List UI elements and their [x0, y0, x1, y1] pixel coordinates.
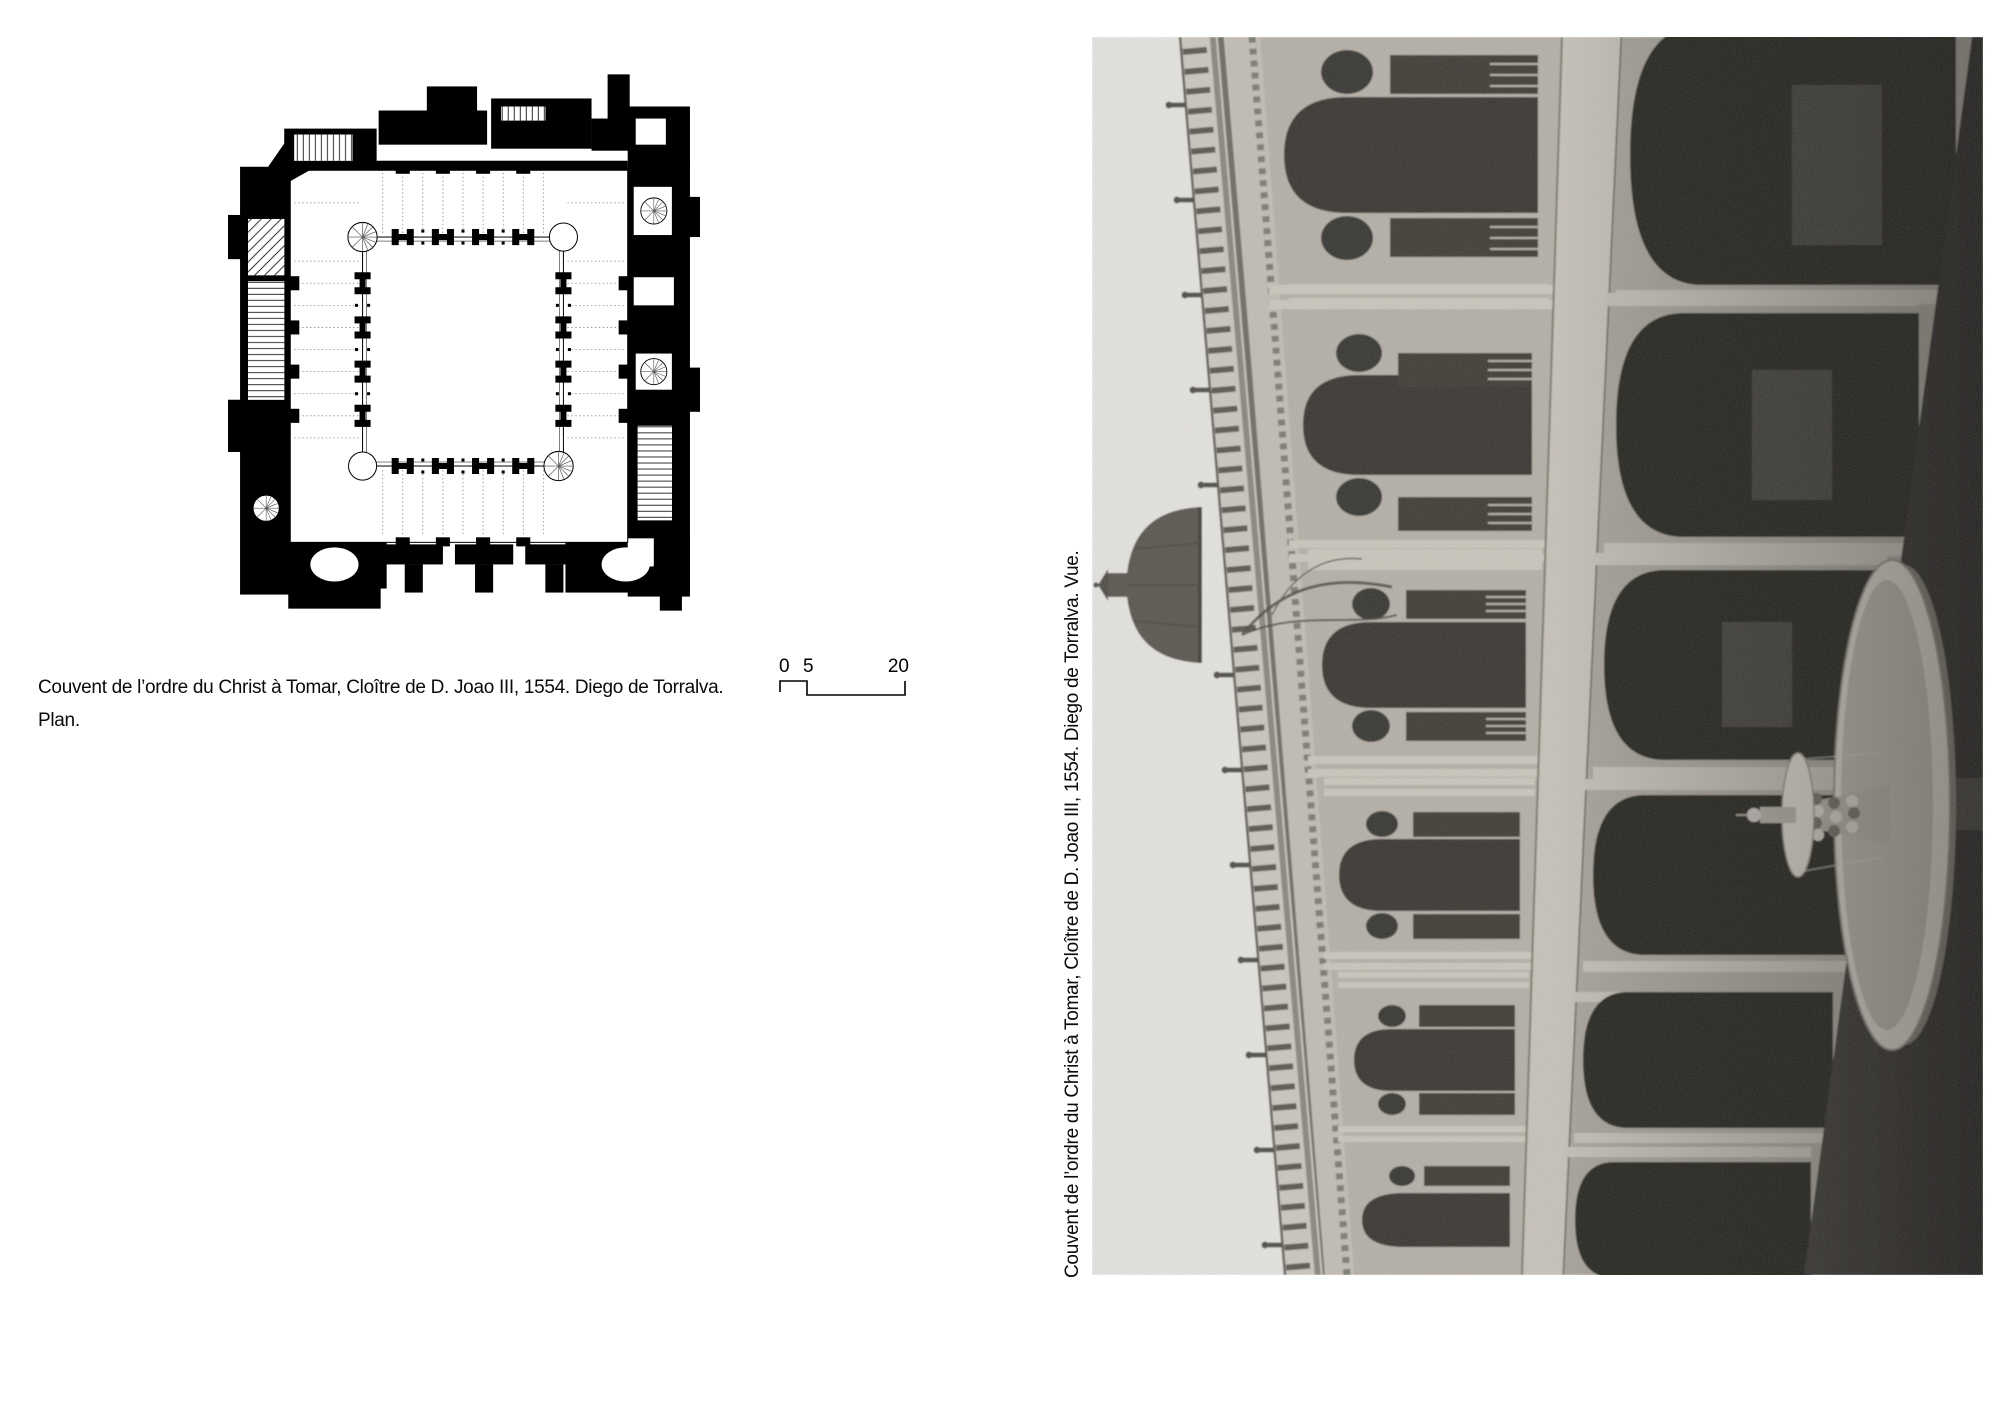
- courtyard: [363, 237, 564, 466]
- cloister-photo: [1092, 37, 1983, 1275]
- cloister-floor-plan: [228, 68, 700, 616]
- scale-bar-rule: [779, 678, 911, 698]
- wall-openings: [248, 107, 674, 582]
- corner-stairs: [348, 222, 578, 480]
- scale-label-0: 0: [779, 656, 790, 678]
- scale-label-20: 20: [888, 656, 909, 678]
- plan-caption-line2: Plan.: [38, 704, 868, 737]
- scale-label-5: 5: [803, 656, 814, 678]
- plan-caption: Couvent de l’ordre du Christ à Tomar, Cl…: [38, 671, 868, 737]
- book-page: Couvent de l’ordre du Christ à Tomar, Cl…: [0, 0, 2007, 1417]
- photo-caption-vertical: Couvent de l’ordre du Christ à Tomar, Cl…: [1059, 518, 1086, 1278]
- spiral-stair-symbol: [253, 495, 279, 521]
- arcade-piers: [355, 229, 572, 474]
- scale-bar: 0 5 20: [779, 656, 911, 700]
- scale-bar-labels: 0 5 20: [779, 656, 911, 678]
- gallery-pilasters: [290, 165, 627, 547]
- vault-dashed-lines: [294, 173, 623, 535]
- gallery-outline: [290, 169, 627, 543]
- courtyard-inner-line: [367, 241, 560, 462]
- spiral-stair-symbol: [641, 359, 667, 385]
- spiral-stair-symbol: [641, 198, 667, 224]
- plan-caption-line1: Couvent de l’ordre du Christ à Tomar, Cl…: [38, 671, 868, 704]
- buttresses: [385, 544, 584, 592]
- film-grain-overlay: [1092, 37, 1983, 1275]
